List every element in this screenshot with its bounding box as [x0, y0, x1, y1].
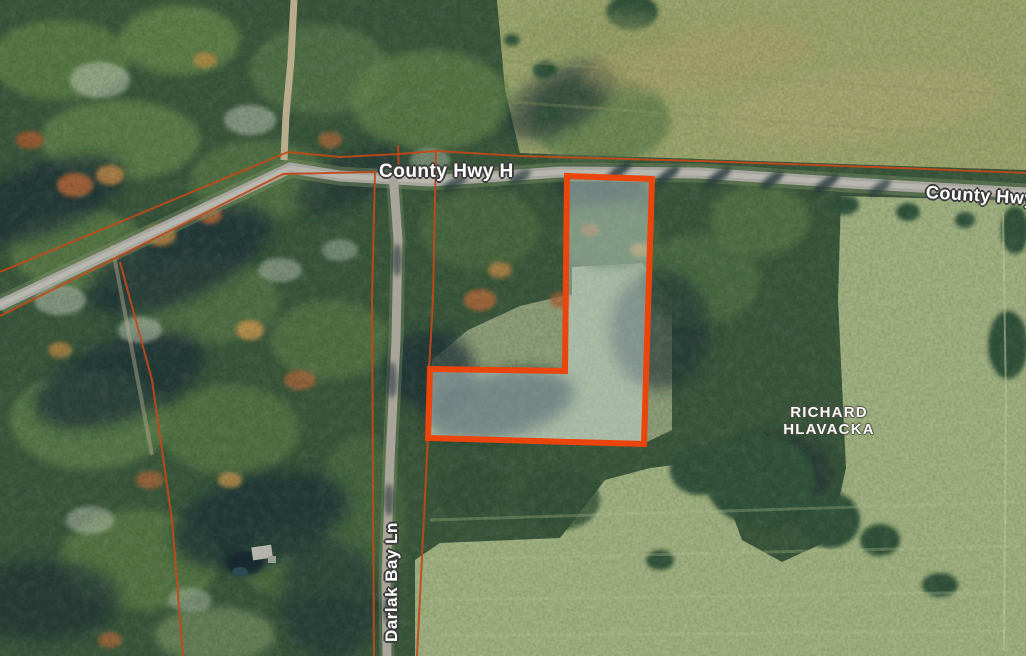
building-outbuilding: [268, 556, 276, 563]
parcel-owner-label: RICHARD HLAVACKA: [783, 404, 875, 438]
map-canvas[interactable]: County Hwy H County Hwy H Darlak Bay Ln …: [0, 0, 1026, 656]
aerial-imagery: [0, 0, 1026, 656]
owner-name-line1: RICHARD: [783, 404, 875, 421]
pond: [232, 567, 248, 577]
road-label-darlak-bay-ln: Darlak Bay Ln: [382, 522, 402, 642]
texture-light: [0, 0, 1026, 656]
owner-name-line2: HLAVACKA: [783, 421, 875, 438]
road-label-county-hwy-h: County Hwy H: [379, 161, 514, 183]
